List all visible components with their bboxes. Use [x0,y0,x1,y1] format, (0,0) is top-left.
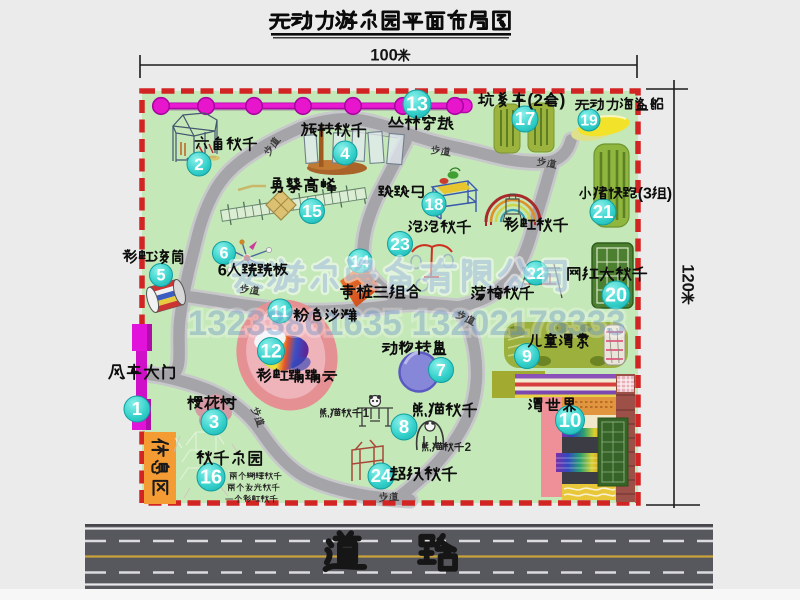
svg-text:9: 9 [522,346,532,366]
svg-text:8: 8 [399,416,409,437]
svg-text:19: 19 [580,112,598,129]
svg-text:23: 23 [390,234,410,254]
svg-text:2: 2 [465,441,471,454]
svg-text:): ) [667,185,672,202]
svg-text:15: 15 [302,201,322,221]
svg-text:10: 10 [559,409,582,432]
svg-text:12: 12 [260,341,281,362]
svg-text:4: 4 [340,144,350,163]
svg-text:16: 16 [200,467,222,489]
svg-text:120: 120 [678,264,696,292]
svg-text:1: 1 [132,398,142,419]
svg-text:1: 1 [363,407,370,420]
svg-text:): ) [560,90,566,110]
svg-text:13: 13 [406,94,428,116]
svg-text:(2: (2 [527,90,543,110]
svg-text:6: 6 [218,262,227,280]
svg-text:7: 7 [436,360,446,380]
svg-text:13233861635 13202178333: 13233861635 13202178333 [188,304,626,343]
svg-text:2: 2 [194,155,203,174]
svg-text:(3: (3 [638,185,652,202]
svg-text:17: 17 [515,108,536,129]
svg-text:5: 5 [156,267,165,285]
svg-text:100: 100 [370,47,398,65]
svg-text:21: 21 [593,201,614,222]
svg-text:3: 3 [209,411,219,432]
svg-text:6: 6 [219,245,228,263]
svg-text:24: 24 [371,465,392,486]
svg-text:18: 18 [425,195,444,214]
